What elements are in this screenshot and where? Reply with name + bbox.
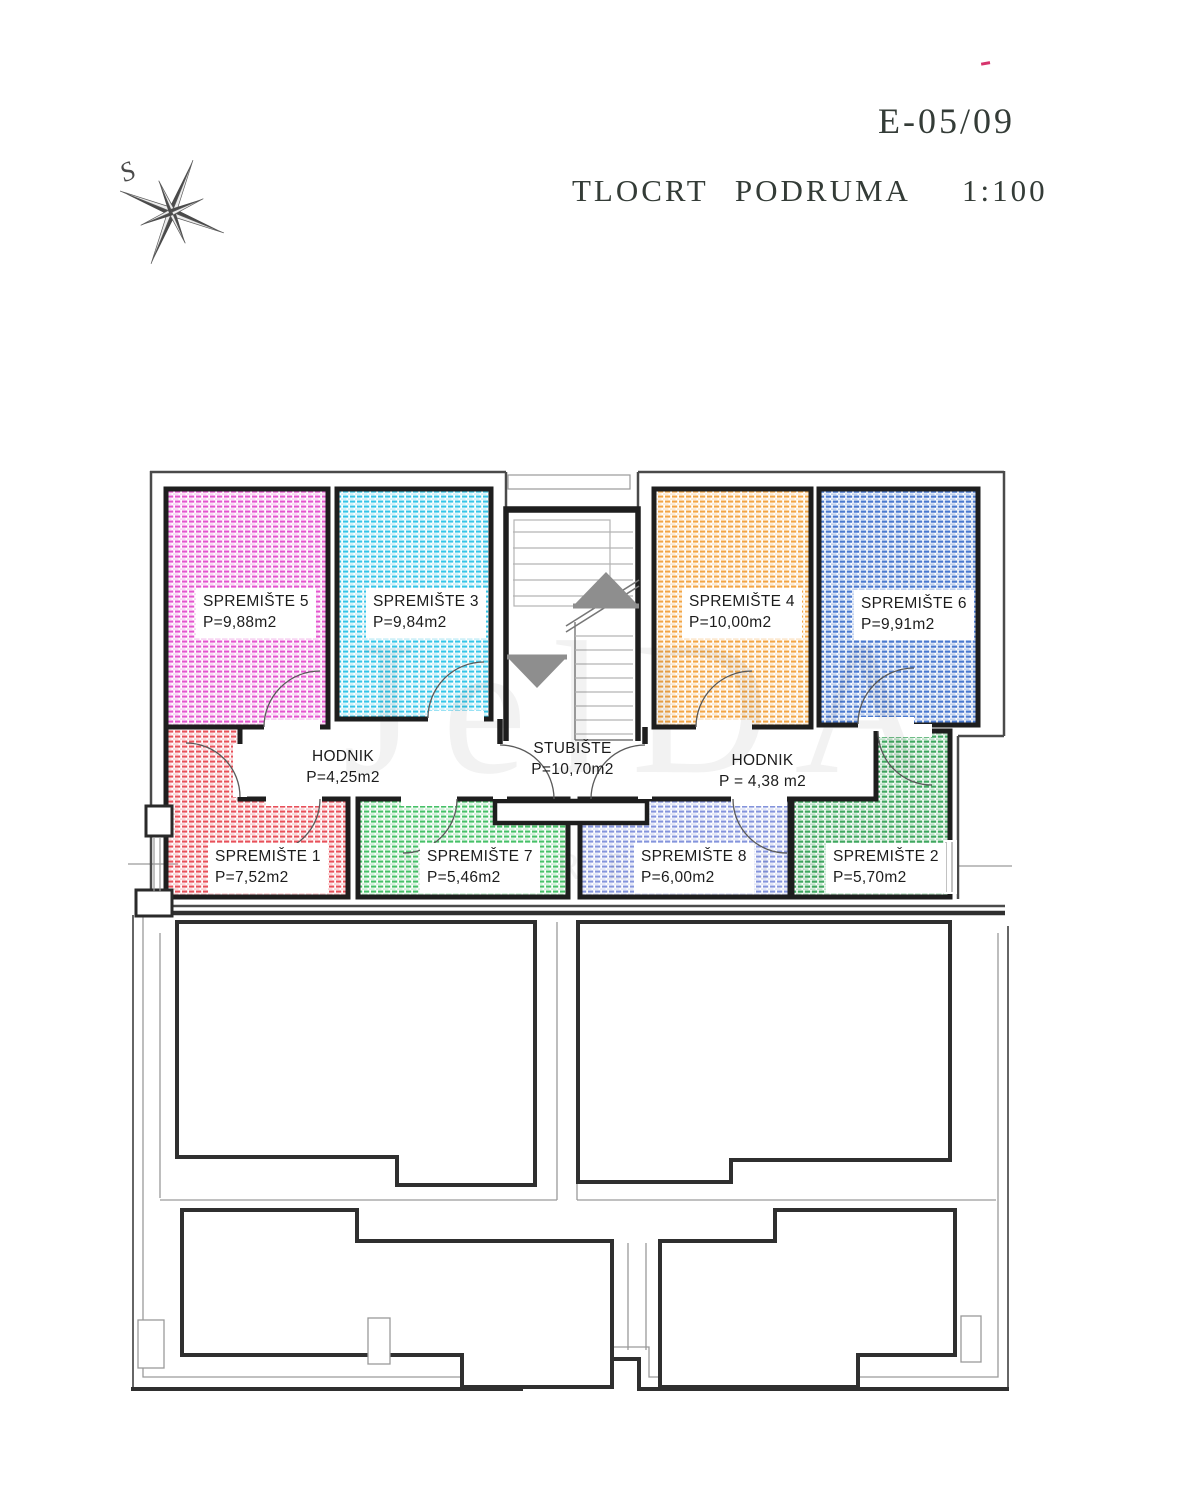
zone-label-stubiste: STUBIŠTE P=10,70m2: [500, 738, 645, 781]
room-label-spremiste-7: SPREMIŠTE 7 P=5,46m2: [420, 843, 540, 893]
lower-plan: [128, 864, 1012, 1389]
room-label-spremiste-4: SPREMIŠTE 4 P=10,00m2: [682, 588, 802, 638]
room-area: P=9,84m2: [373, 612, 479, 633]
zone-area: P=4,25m2: [283, 767, 403, 788]
room-name: SPREMIŠTE 7: [427, 846, 533, 867]
room-name: SPREMIŠTE 8: [641, 846, 747, 867]
room-name: SPREMIŠTE 4: [689, 591, 795, 612]
stair-arrow-down-icon: [509, 659, 565, 688]
room-area: P=9,91m2: [861, 614, 967, 635]
page-title: TLOCRT PODRUMA: [572, 173, 911, 209]
room-name: SPREMIŠTE 6: [861, 593, 967, 614]
room-area: P=5,46m2: [427, 867, 533, 888]
window-box: [138, 1320, 164, 1368]
red-mark: [981, 61, 990, 66]
compass-north-label: S: [115, 155, 140, 188]
room-label-spremiste-8: SPREMIŠTE 8 P=6,00m2: [634, 843, 754, 893]
zone-name: HODNIK: [283, 746, 403, 767]
drawing-scale: 1:100: [962, 173, 1048, 209]
room-name: SPREMIŠTE 2: [833, 846, 939, 867]
window-box: [368, 1318, 390, 1364]
stairwell-window: [508, 475, 630, 489]
room-area: P=5,70m2: [833, 867, 939, 888]
zone-name: STUBIŠTE: [500, 738, 645, 759]
room-label-spremiste-3: SPREMIŠTE 3 P=9,84m2: [366, 588, 486, 638]
zone-name: HODNIK: [685, 750, 840, 771]
room-area: P=6,00m2: [641, 867, 747, 888]
room-area: P=7,52m2: [215, 867, 321, 888]
zone-label-hodnik-left: HODNIK P=4,25m2: [283, 746, 403, 789]
room-name: SPREMIŠTE 5: [203, 591, 309, 612]
zone-area: P = 4,38 m2: [685, 771, 840, 792]
room-label-spremiste-5: SPREMIŠTE 5 P=9,88m2: [196, 588, 316, 638]
scanned-floor-plan-page: S: [0, 0, 1200, 1493]
room-label-spremiste-2: SPREMIŠTE 2 P=5,70m2: [826, 843, 946, 893]
storage-rooms: [166, 489, 978, 897]
room-name: SPREMIŠTE 3: [373, 591, 479, 612]
window-box: [961, 1316, 981, 1362]
room-label-spremiste-1: SPREMIŠTE 1 P=7,52m2: [208, 843, 328, 893]
zone-area: P=10,70m2: [500, 759, 645, 780]
room-area: P=9,88m2: [203, 612, 309, 633]
room-area: P=10,00m2: [689, 612, 795, 633]
zone-label-hodnik-right: HODNIK P = 4,38 m2: [685, 750, 840, 793]
room-label-spremiste-6: SPREMIŠTE 6 P=9,91m2: [854, 590, 974, 640]
stairs: [507, 520, 639, 740]
room-name: SPREMIŠTE 1: [215, 846, 321, 867]
drawing-number: E-05/09: [878, 100, 1015, 142]
